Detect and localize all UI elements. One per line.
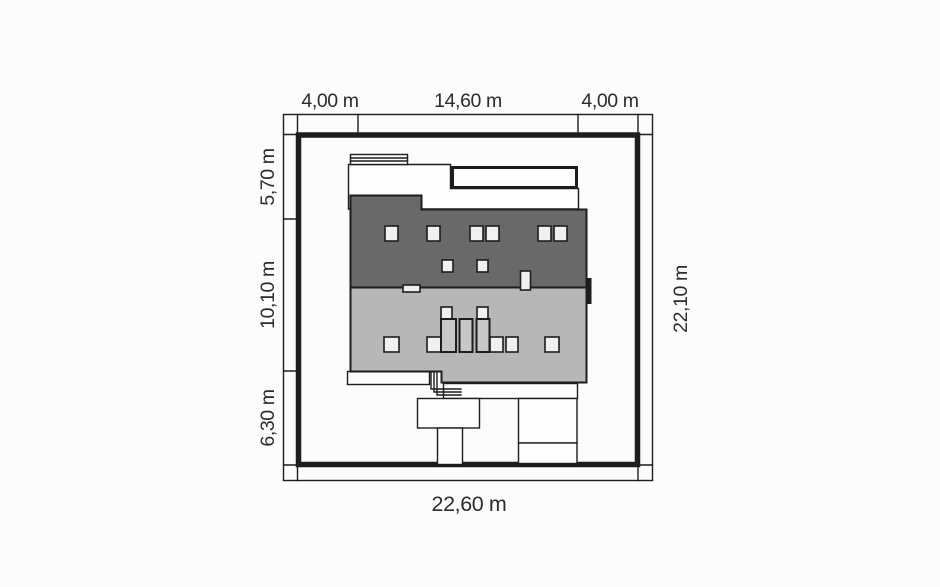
dim-label-top-middle: 14,60 m [434, 90, 502, 112]
south-wall-band [444, 384, 578, 399]
dim-label-right: 22,10 m [670, 265, 692, 333]
dim-label-left-upper: 5,70 m [257, 148, 279, 205]
driveway-upper [519, 399, 578, 444]
roof-vent [442, 260, 453, 272]
roof-window [538, 226, 551, 241]
dim-label-left-lower: 6,30 m [257, 389, 279, 446]
entrance-landing [418, 399, 480, 429]
roof-window [486, 226, 499, 241]
dim-label-top-right: 4,00 m [581, 90, 638, 112]
chimney-stack [441, 319, 456, 352]
roof-vent [441, 307, 452, 319]
roof-window [384, 337, 399, 352]
chimney-stack [460, 319, 473, 352]
ridge-vent [403, 285, 420, 292]
roof-window [470, 226, 483, 241]
roof-window [427, 226, 440, 241]
dim-label-left-middle: 10,10 m [257, 261, 279, 329]
dim-label-bottom: 22,60 m [432, 492, 507, 516]
dim-label-top-left: 4,00 m [301, 90, 358, 112]
chimney-white [521, 271, 531, 290]
roof-vent [477, 260, 488, 272]
entrance-pergola [351, 155, 408, 165]
roof-vent [477, 307, 488, 319]
walkway-to-street [438, 428, 463, 465]
south-west-terrace [348, 372, 430, 385]
chimney-stack-group [441, 319, 490, 352]
driveway-lower [519, 443, 578, 464]
roof-window [554, 226, 567, 241]
site-plan-image: 4,00 m 14,60 m 4,00 m 5,70 m 10,10 m 6,3… [0, 0, 940, 587]
roof-window [490, 337, 503, 352]
roof-window [506, 337, 518, 352]
terrace-outline [453, 168, 577, 188]
roof-window [545, 337, 559, 352]
chimney-stack [477, 319, 490, 352]
roof-window [427, 337, 441, 352]
roof-window [385, 226, 398, 241]
site-plan-svg: 4,00 m 14,60 m 4,00 m 5,70 m 10,10 m 6,3… [0, 0, 940, 587]
roof-edge-tab [586, 278, 592, 304]
